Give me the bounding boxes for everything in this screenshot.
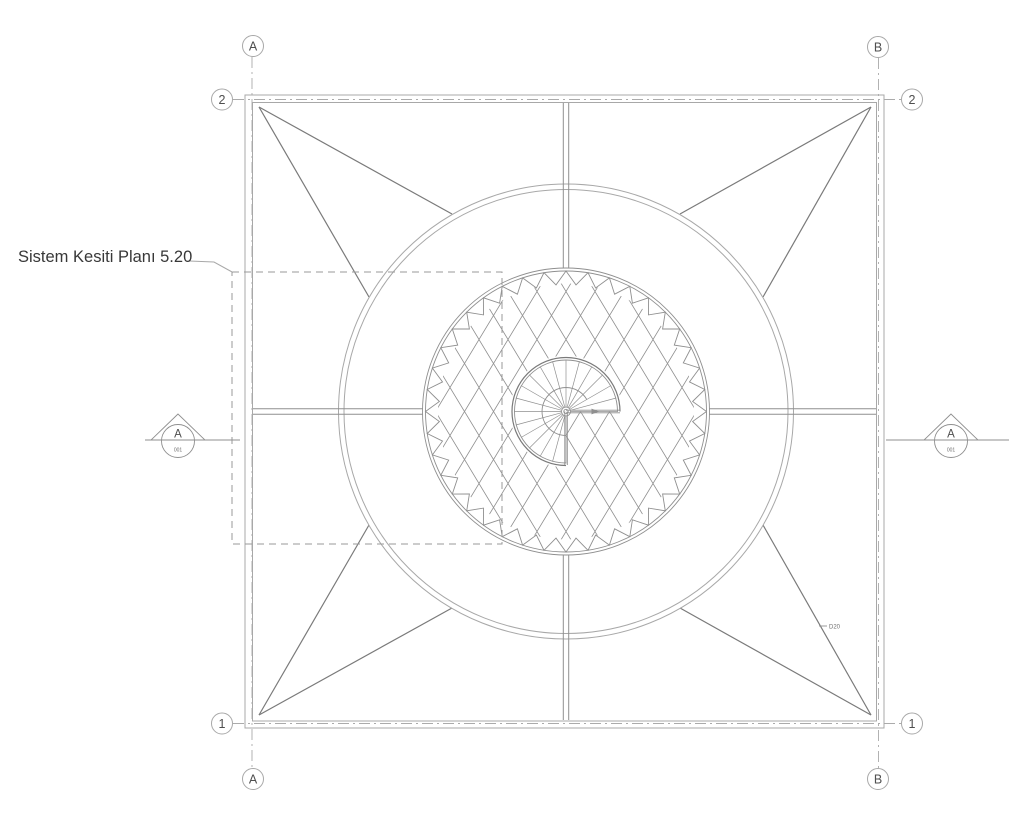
svg-text:B: B xyxy=(874,40,882,54)
svg-text:2: 2 xyxy=(219,93,226,107)
section-marker-left-label: A xyxy=(174,429,182,441)
member-tag-label: D20 xyxy=(829,625,841,631)
grid-bubble-2-right: 2 xyxy=(902,89,923,110)
grid-bubble-a-top: A xyxy=(243,36,264,57)
grid-bubble-2-left: 2 xyxy=(212,89,233,110)
svg-text:A: A xyxy=(249,772,258,786)
section-marker-right-label: A xyxy=(947,429,955,441)
svg-text:1: 1 xyxy=(219,717,226,731)
grid-bubble-1-left: 1 xyxy=(212,713,233,734)
grid-bubble-b-top: B xyxy=(868,37,889,58)
detail-title: Sistem Kesiti Planı 5.20 xyxy=(18,248,192,266)
section-marker-left: A 001 xyxy=(145,414,240,458)
svg-text:1: 1 xyxy=(909,717,916,731)
drawing-sheet: Sistem Kesiti Planı 5.20 D20 A B 2 2 1 xyxy=(0,0,1024,833)
plan-drawing: Sistem Kesiti Planı 5.20 D20 A B 2 2 1 xyxy=(0,0,1024,833)
grid-bubble-1-right: 1 xyxy=(902,713,923,734)
svg-text:A: A xyxy=(249,39,258,53)
svg-text:2: 2 xyxy=(909,93,916,107)
section-marker-right-sheet: 001 xyxy=(947,448,956,454)
section-marker-right: A 001 xyxy=(886,414,1009,458)
grid-bubble-b-bottom: B xyxy=(868,769,889,790)
svg-text:B: B xyxy=(874,772,882,786)
section-marker-left-sheet: 001 xyxy=(174,448,183,454)
grid-bubble-a-bottom: A xyxy=(243,769,264,790)
